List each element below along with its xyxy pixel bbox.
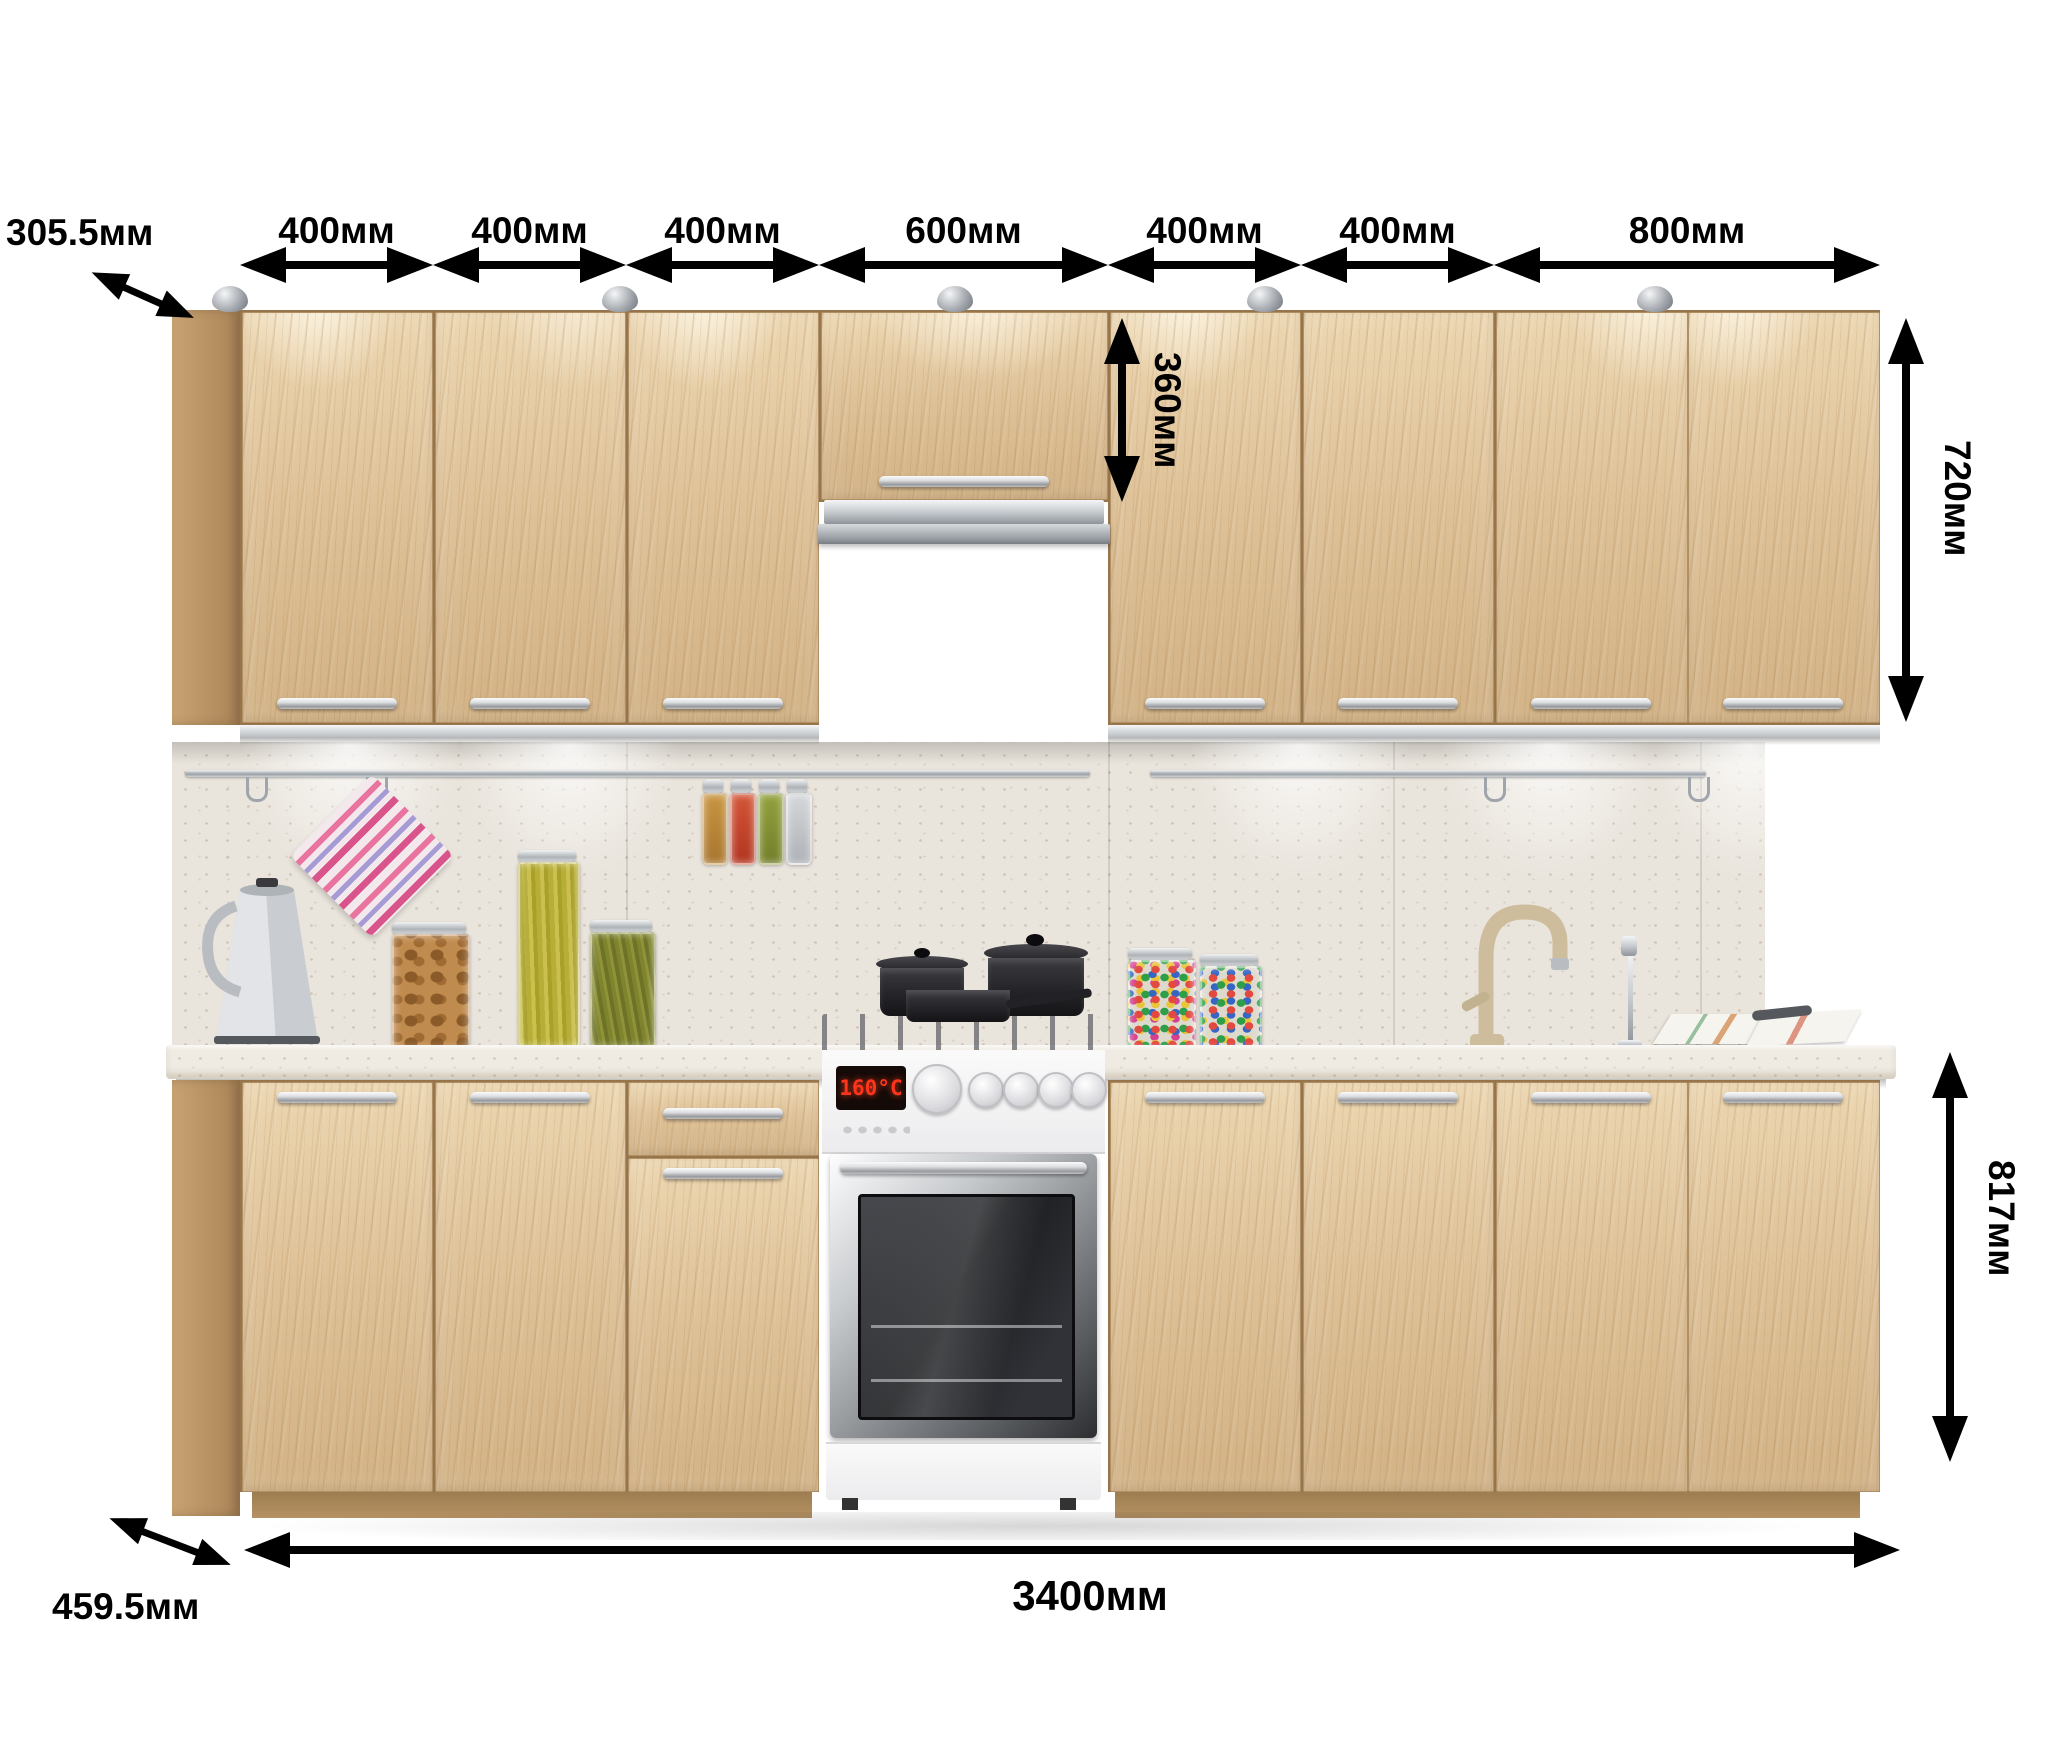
- door-handle: [470, 1092, 590, 1103]
- rail-hook: [246, 777, 268, 802]
- door-handle: [1531, 1092, 1651, 1103]
- dim-label-width: 800мм: [1494, 210, 1880, 252]
- base-cabinet-door: [1303, 1082, 1494, 1492]
- rail-hook: [1484, 777, 1506, 802]
- upper-side-panel: [172, 310, 240, 725]
- herb-jar-lid: [518, 850, 576, 862]
- oven-display-value: 160°C: [839, 1076, 902, 1100]
- puck-light-icon: [602, 286, 638, 312]
- kettle-icon: [196, 876, 338, 1048]
- oven-glass: [858, 1194, 1075, 1420]
- spice-tube: [702, 793, 728, 865]
- dim-arrow-total-length: [244, 1532, 1900, 1568]
- spice-tube-cap: [703, 779, 723, 793]
- door-handle: [470, 698, 590, 709]
- range-hood: [824, 500, 1104, 524]
- herb-jar: [518, 862, 580, 1048]
- spice-tube: [786, 793, 812, 865]
- candy-jar-lid: [1128, 948, 1192, 960]
- saucepan: [906, 990, 1010, 1022]
- spice-tube: [730, 793, 756, 865]
- upper-cabinet-door: [242, 312, 433, 723]
- dim-label-width: 400мм: [433, 210, 626, 252]
- cookie-jar-lid: [392, 922, 466, 934]
- spice-tube-cap: [787, 779, 807, 793]
- candy-jar: [1200, 966, 1262, 1050]
- sprayer-head: [1621, 936, 1637, 956]
- under-cabinet-light-strip: [1108, 725, 1880, 737]
- oven-door: [830, 1154, 1097, 1438]
- dim-label-width: 400мм: [1108, 210, 1301, 252]
- rail-hook: [1688, 777, 1710, 802]
- dim-arrow-base-height: [1932, 1052, 1968, 1462]
- puck-light-icon: [212, 286, 248, 312]
- stove-knob: [1071, 1072, 1107, 1108]
- spice-tube-cap: [759, 779, 779, 793]
- door-handle: [1145, 1092, 1265, 1103]
- glass-reflection: [861, 1197, 1072, 1417]
- wall-rail: [185, 770, 1090, 777]
- dim-arrow-width: [819, 247, 1108, 283]
- base-cabinet-door: [242, 1082, 433, 1492]
- kitchen-dimension-diagram: 160°C 305.5мм 400мм 400мм: [0, 0, 2048, 1757]
- upper-cabinet-door: [1496, 312, 1688, 723]
- upper-cabinet-door: [435, 312, 626, 723]
- puck-light-icon: [1247, 286, 1283, 312]
- faucet-icon: [1452, 886, 1602, 1052]
- hood-light-cone: [887, 546, 1037, 736]
- base-cabinet-door: [1496, 1082, 1688, 1492]
- door-handle: [277, 698, 397, 709]
- cookie-jar: [392, 934, 470, 1050]
- backsplash-seam: [1393, 742, 1395, 1045]
- dim-arrow-width: [1494, 247, 1880, 283]
- puck-light-icon: [937, 286, 973, 312]
- door-handle: [879, 476, 1049, 487]
- stove-knob: [1003, 1072, 1039, 1108]
- base-side-panel: [172, 1080, 240, 1516]
- cabinet-shadow: [1108, 737, 1880, 745]
- dim-label-upper-height: 720мм: [1936, 440, 1978, 556]
- spice-tube-cap: [731, 779, 751, 793]
- wall-rail: [1150, 770, 1706, 777]
- pot-lid-knob: [1026, 934, 1044, 946]
- upper-cabinet-door: [1303, 312, 1494, 723]
- door-handle: [1531, 698, 1651, 709]
- base-cabinet-door: [1110, 1082, 1301, 1492]
- dim-label-base-height: 817мм: [1980, 1160, 2022, 1276]
- dim-label-total-length: 3400мм: [790, 1572, 1390, 1620]
- door-handle: [1338, 1092, 1458, 1103]
- dim-arrow-upper-depth: [83, 260, 200, 338]
- base-cabinet-door: [435, 1082, 626, 1492]
- upper-cabinet-door: [628, 312, 819, 723]
- dim-arrow-width: [626, 247, 819, 283]
- sprayer-rod: [1628, 952, 1633, 1044]
- door-handle: [1338, 698, 1458, 709]
- dim-arrow-upper-height: [1888, 318, 1924, 722]
- stove-foot: [842, 1498, 858, 1510]
- drawer-front: [628, 1082, 819, 1156]
- door-handle: [663, 1168, 783, 1179]
- door-handle: [663, 698, 783, 709]
- dim-arrow-width: [240, 247, 433, 283]
- stove-knob: [1038, 1072, 1074, 1108]
- herb-jar: [590, 932, 656, 1048]
- dim-label-width: 400мм: [1301, 210, 1494, 252]
- dim-arrow-width: [1108, 247, 1301, 283]
- cabinet-shadow: [240, 737, 819, 745]
- herb-jar-lid: [590, 920, 652, 932]
- dim-label-hood-height: 360мм: [1146, 352, 1188, 468]
- range-hood-front: [818, 524, 1110, 544]
- dim-arrow-hood-height: [1104, 318, 1140, 502]
- candy-jar-lid: [1200, 954, 1258, 966]
- stove-drawer: [826, 1442, 1101, 1500]
- door-handle: [1723, 1092, 1843, 1103]
- backsplash-seam: [1108, 742, 1110, 1045]
- spice-tube: [758, 793, 784, 865]
- base-cabinet-door: [628, 1158, 819, 1492]
- stove-knob: [968, 1072, 1004, 1108]
- stove-foot: [1060, 1498, 1076, 1510]
- upper-cabinet-door: [1688, 312, 1880, 723]
- hood-light-cone: [969, 546, 1119, 736]
- door-handle: [1145, 698, 1265, 709]
- backsplash-top-shadow: [172, 742, 1765, 764]
- stove-buttons: [838, 1122, 910, 1134]
- under-cabinet-light-strip: [240, 725, 819, 737]
- dim-arrow-width: [1301, 247, 1494, 283]
- dim-label-width: 400мм: [240, 210, 433, 252]
- dim-label-width: 600мм: [819, 210, 1108, 252]
- hood-light-cone: [805, 546, 955, 736]
- candy-jar: [1128, 960, 1196, 1050]
- gas-stove: 160°C: [822, 1014, 1105, 1510]
- stove-dial: [912, 1064, 962, 1114]
- pot-lid-knob: [914, 948, 930, 958]
- dim-arrow-width: [433, 247, 626, 283]
- door-handle: [1723, 698, 1843, 709]
- oven-handle: [840, 1162, 1087, 1174]
- oven-display: 160°C: [836, 1066, 906, 1110]
- puck-light-icon: [1637, 286, 1673, 312]
- dim-label-upper-depth: 305.5мм: [6, 212, 153, 254]
- dim-label-width: 400мм: [626, 210, 819, 252]
- base-cabinet-door: [1688, 1082, 1880, 1492]
- hood-cabinet-door: [821, 312, 1108, 500]
- dim-label-base-depth: 459.5мм: [52, 1586, 199, 1628]
- drawer-handle: [663, 1108, 783, 1119]
- door-handle: [277, 1092, 397, 1103]
